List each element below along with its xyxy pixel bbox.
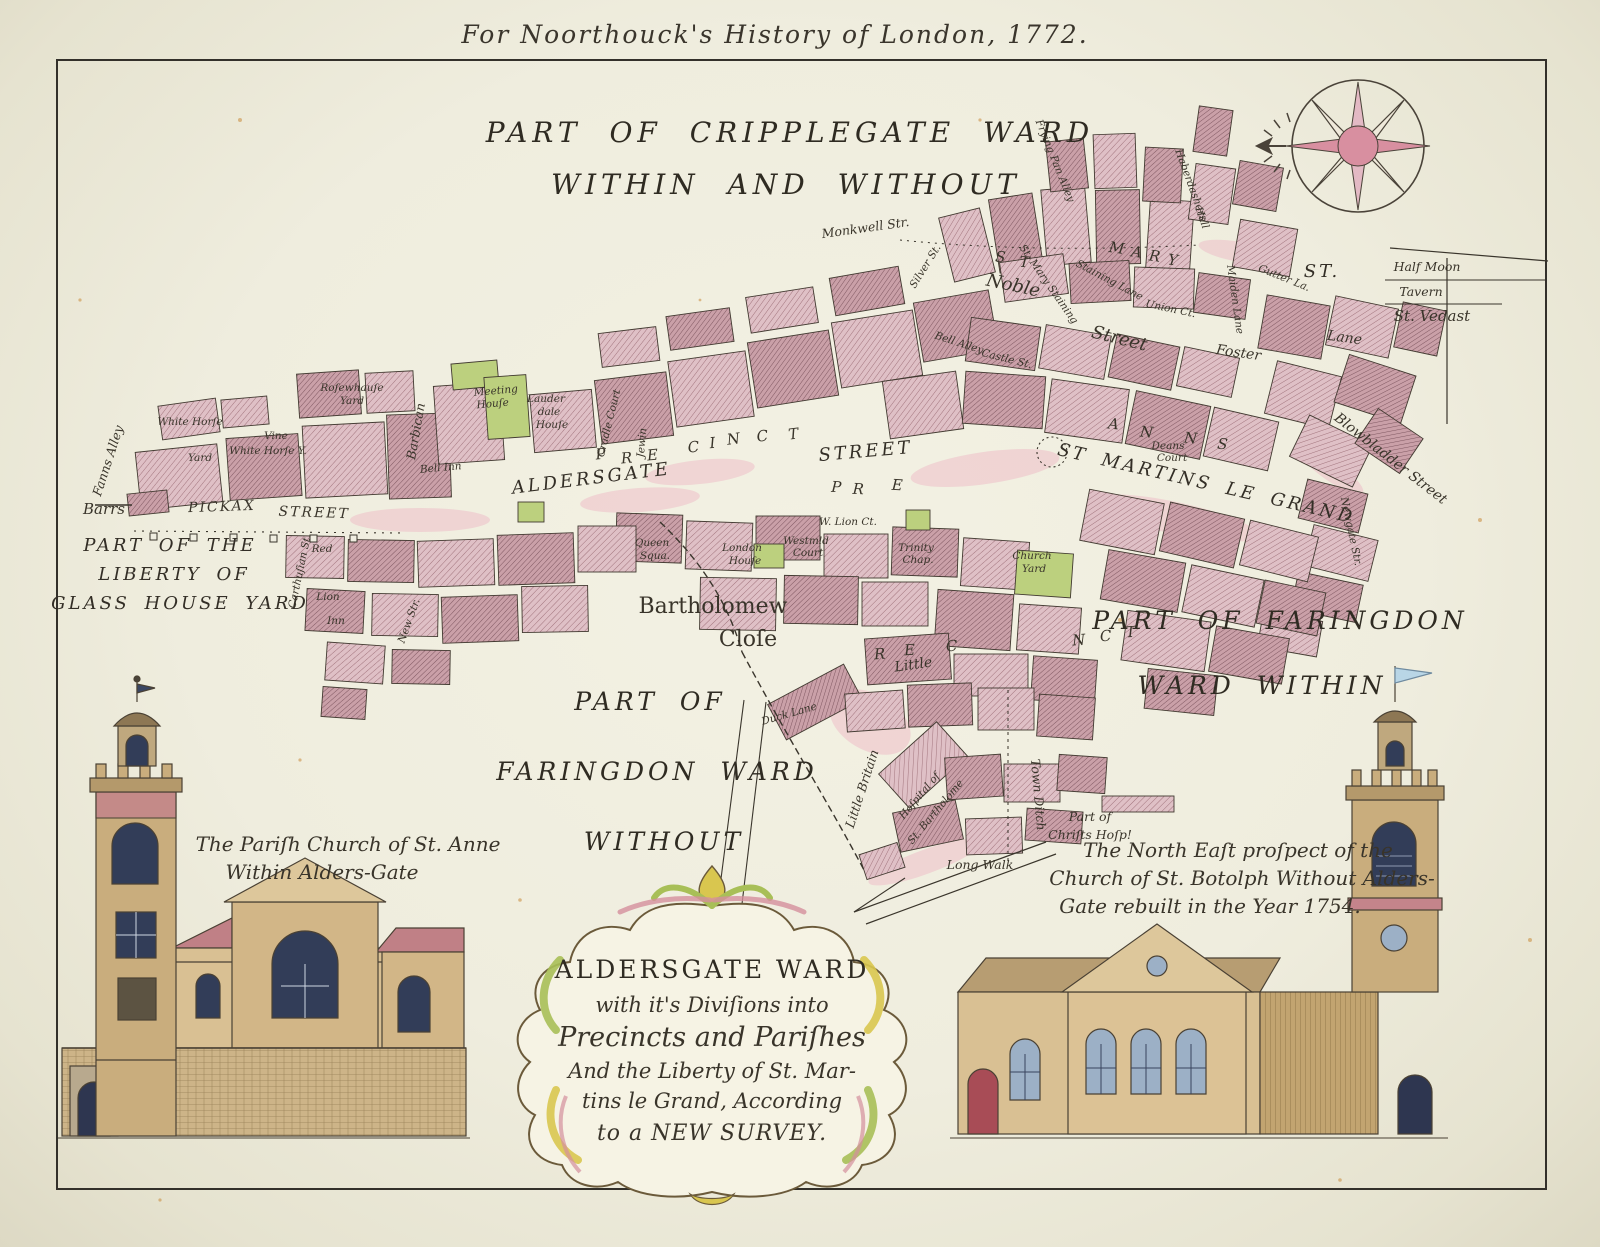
building-block (907, 683, 972, 727)
building-block (962, 371, 1045, 428)
map-label: S (1216, 435, 1228, 454)
building-block (518, 502, 544, 522)
building-block (939, 208, 996, 282)
map-label: S (995, 248, 1007, 267)
map-label: E (903, 641, 916, 660)
map-label: T (787, 424, 800, 443)
building-block (221, 396, 269, 428)
map-label: Vine (264, 430, 288, 442)
map-label: STREET (278, 504, 350, 522)
building-block (1326, 296, 1399, 358)
building-block (226, 434, 302, 501)
map-label: R (619, 449, 633, 468)
building-block (1239, 520, 1318, 582)
building-block (1233, 161, 1284, 212)
map-label: Yard (188, 452, 212, 464)
map-label: London (721, 542, 762, 554)
imprint-title: For Noorthouck's History of London, 1772… (0, 20, 1550, 49)
building-block (1037, 694, 1096, 740)
building-block (747, 330, 838, 408)
map-label: Roſewhauſe (319, 382, 383, 394)
compass-rose-icon (1256, 80, 1430, 212)
building-block (1093, 133, 1137, 188)
map-label: P (830, 478, 843, 497)
map-label: Part of (1068, 809, 1114, 824)
map-label: R (851, 480, 864, 499)
map-label: N (1182, 428, 1199, 447)
map-label: Church of St. Botolph Without Alders- (1049, 866, 1435, 890)
building-block (965, 817, 1022, 855)
map-label: PART OF THE (82, 535, 256, 556)
map-label: Court (1157, 452, 1188, 464)
church-st-anne (58, 676, 470, 1138)
building-block (417, 539, 495, 588)
building-block (297, 370, 362, 418)
building-block (824, 534, 888, 578)
building-block (666, 308, 734, 351)
map-label: ALDERSGATE WARD (554, 955, 870, 984)
st-anne-caption: The Pariſh Church of St. AnneWithin Alde… (196, 832, 501, 884)
map-label: Trinity (898, 542, 935, 554)
map-label: tins le Grand, According (582, 1089, 842, 1113)
map-label: Inn (326, 615, 345, 627)
map-label: Lauder (526, 393, 566, 405)
pink-wash (579, 484, 700, 516)
map-label: Silver St. (907, 242, 943, 290)
map-label: WITHOUT (584, 827, 744, 856)
map-label: Deans (1150, 440, 1185, 452)
map-label: Bartholomew (638, 594, 787, 619)
building-block (1159, 502, 1244, 568)
map-label: Lion (315, 591, 340, 603)
building-block (882, 371, 963, 439)
map-label: LIBERTY OF (97, 564, 250, 585)
building-block (829, 266, 905, 316)
building-block (862, 582, 928, 626)
map-label: E (890, 476, 903, 495)
map-label: C (687, 437, 701, 456)
map-label: R (872, 645, 886, 664)
building-block (325, 642, 386, 684)
map-label: The North Eaſt proſpect of the (1083, 838, 1393, 862)
map-label: dale (538, 406, 561, 418)
map-label: Church (1012, 550, 1051, 562)
building-block (441, 595, 519, 644)
map-label: ST. (1304, 261, 1340, 282)
map-label: Half Moon (1393, 259, 1461, 274)
building-block (831, 310, 922, 388)
map-label: St. Vedast (1394, 307, 1471, 325)
map-label: And the Liberty of St. Mar- (566, 1059, 856, 1083)
building-block (1203, 407, 1279, 471)
building-block (978, 688, 1034, 730)
building-block (348, 539, 415, 582)
map-label: PART OF CRIPPLEGATE WARD (485, 116, 1094, 149)
building-block (598, 327, 660, 368)
building-block (1193, 106, 1233, 156)
building-block (578, 526, 636, 572)
building-block (1258, 295, 1330, 359)
building-block (746, 287, 819, 333)
map-label: I (708, 434, 718, 453)
map-label: Cloſe (719, 627, 777, 652)
map-label: Little Britain (842, 748, 882, 831)
building-block (1045, 379, 1130, 443)
building-block (845, 690, 906, 732)
building-block (1057, 754, 1107, 793)
map-label: R (1147, 246, 1162, 266)
building-block (302, 422, 388, 498)
antique-map-sheet: For Noorthouck's History of London, 1772… (0, 0, 1600, 1247)
map-label: PICKAX (187, 498, 256, 516)
map-label: White Horſe (157, 416, 222, 428)
map-label: PART OF FARINGDON (1091, 606, 1468, 635)
building-block (127, 490, 169, 516)
map-label: Yard (1022, 563, 1046, 575)
map-label: C (1099, 627, 1112, 646)
building-block (1264, 361, 1341, 429)
map-label: W. Lion Ct. (819, 516, 877, 528)
map-label: N (1070, 631, 1086, 650)
building-block (321, 687, 367, 720)
map-label: Chap. (902, 554, 933, 566)
building-block (497, 533, 575, 586)
pink-wash (909, 442, 1062, 495)
map-engraving: PART OF CRIPPLEGATE WARDWITHIN AND WITHO… (0, 0, 1600, 1247)
pink-wash (350, 508, 490, 532)
map-label: Yard (340, 395, 364, 407)
building-block (906, 510, 930, 530)
map-label: PART OF (573, 687, 725, 716)
map-label: The Pariſh Church of St. Anne (196, 832, 501, 856)
map-label: Westmld (783, 535, 829, 547)
building-block (1102, 796, 1174, 812)
map-label: Tavern (1399, 284, 1442, 299)
map-label: STREET (818, 437, 914, 466)
map-label: with it's Diviſions into (595, 993, 828, 1017)
map-label: N (1138, 422, 1155, 441)
map-label: N (725, 429, 742, 449)
map-label: Red (311, 543, 333, 555)
map-label: Bell Inn (418, 460, 462, 476)
building-block (668, 351, 754, 427)
map-label: White Horſe Y. (229, 445, 307, 457)
map-label: to a NEW SURVEY. (597, 1121, 827, 1146)
map-label: M (1107, 238, 1126, 258)
map-label: Queen (635, 537, 670, 549)
map-label: GLASS HOUSE YARD (51, 593, 309, 614)
map-label: WARD WITHIN (1137, 671, 1386, 700)
map-label: Houſe (535, 419, 568, 431)
building-block (392, 649, 451, 684)
map-label: Fanns Alley (89, 423, 126, 499)
building-block (784, 575, 859, 624)
map-label: Squa. (640, 550, 670, 562)
building-block (1100, 550, 1185, 613)
map-label: FARINGDON WARD (495, 757, 818, 786)
map-label: C (945, 637, 958, 656)
map-label: Barrs (82, 500, 125, 518)
map-label: Court (793, 547, 824, 559)
map-label: E (645, 446, 659, 465)
map-label: Within Alders-Gate (226, 860, 419, 884)
map-label: C (756, 426, 770, 445)
building-block (522, 585, 589, 632)
map-label: Houſe (728, 555, 761, 567)
map-label: Monkwell Str. (820, 214, 910, 241)
map-label: WITHIN AND WITHOUT (551, 168, 1021, 201)
map-label: Gate rebuilt in the Year 1754. (1059, 894, 1361, 918)
map-label: Precincts and Pariſhes (557, 1022, 866, 1053)
map-label: Long Walk (946, 857, 1014, 872)
